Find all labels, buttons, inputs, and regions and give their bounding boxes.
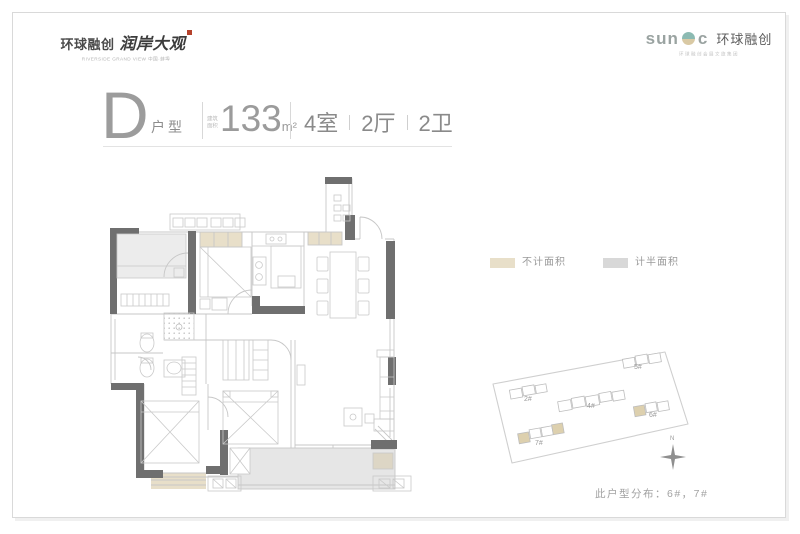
title-underline bbox=[103, 146, 452, 147]
legend-item-excluded: 不计面积 bbox=[490, 258, 566, 268]
spec-separator bbox=[407, 115, 408, 130]
legend-label: 不计面积 bbox=[522, 258, 566, 268]
building-label-5: 5# bbox=[634, 364, 642, 371]
dark-walls bbox=[110, 177, 397, 478]
legend-swatch-excluded bbox=[490, 258, 515, 268]
red-seal-icon bbox=[187, 30, 192, 35]
building-label-7: 7# bbox=[535, 440, 543, 447]
area-fills bbox=[117, 232, 395, 489]
globe-icon bbox=[682, 32, 695, 45]
shower-area bbox=[164, 313, 194, 340]
project-name: 润岸大观 bbox=[120, 36, 186, 53]
legend-swatch-half bbox=[603, 258, 628, 268]
building-label-6: 6# bbox=[649, 412, 657, 419]
spec-baths: 2卫 bbox=[419, 106, 453, 138]
title-divider bbox=[290, 102, 291, 139]
sunac-word-post: c bbox=[698, 30, 708, 47]
building-label-4: 4# bbox=[587, 403, 595, 410]
spec-separator bbox=[349, 115, 350, 130]
compass-north-label: N bbox=[670, 436, 674, 442]
building-label-2: 2# bbox=[524, 396, 532, 403]
title-divider bbox=[202, 102, 203, 139]
distribution-caption: 此户型分布：6#，7# bbox=[595, 486, 708, 501]
spec-rooms: 4室 bbox=[304, 106, 338, 138]
project-logo-text: 环球融创润岸大观 bbox=[46, 30, 206, 54]
project-logo: 环球融创润岸大观 RIVERSIDE GRAND VIEW 中国·蚌埠 bbox=[46, 30, 206, 64]
plan-letter: D bbox=[101, 82, 149, 148]
floor-plan-drawing bbox=[108, 167, 438, 514]
sunac-tagline: 环球融创会展文旅集团 bbox=[653, 50, 766, 57]
spec-halls: 2厅 bbox=[361, 106, 395, 138]
plan-type-label: 户型 bbox=[151, 117, 185, 137]
room-specs: 4室 2厅 2卫 bbox=[304, 106, 453, 138]
sunac-logo: sunc 环球融创 环球融创会展文旅集团 bbox=[634, 29, 784, 59]
project-logo-subtitle: RIVERSIDE GRAND VIEW 中国·蚌埠 bbox=[64, 55, 189, 62]
legend-label: 计半面积 bbox=[635, 258, 679, 268]
sunac-logo-row: sunc 环球融创 bbox=[634, 29, 784, 48]
sunac-brand-cn: 环球融创 bbox=[716, 29, 772, 48]
area-label: 建筑 面积 bbox=[207, 116, 218, 130]
area-value: 133m² bbox=[220, 100, 297, 137]
compass-icon bbox=[660, 444, 686, 470]
legend-item-half: 计半面积 bbox=[603, 258, 679, 268]
brand-name: 环球融创 bbox=[60, 37, 114, 52]
sunac-word-pre: sun bbox=[646, 30, 679, 47]
